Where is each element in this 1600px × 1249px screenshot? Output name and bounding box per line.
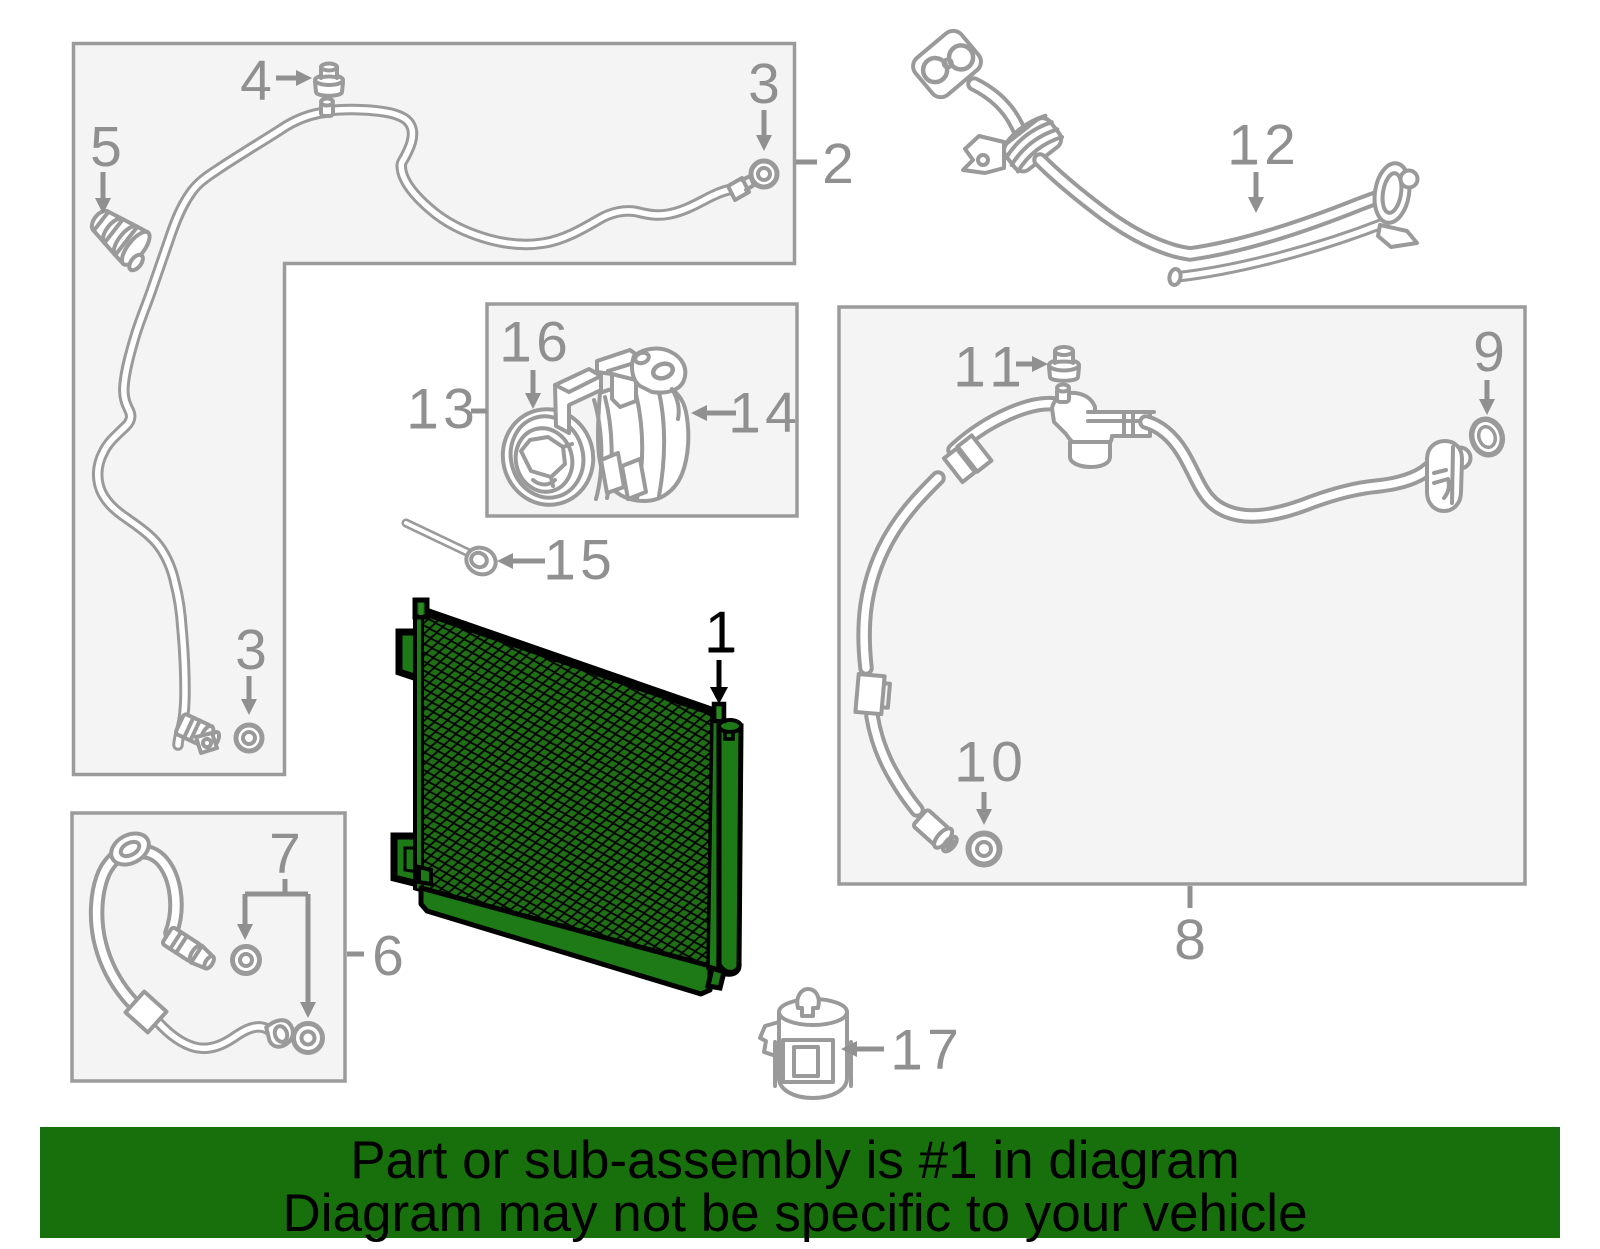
svg-text:6: 6 xyxy=(536,310,568,374)
svg-text:1: 1 xyxy=(407,377,439,441)
svg-text:1: 1 xyxy=(705,600,737,665)
svg-text:9: 9 xyxy=(1473,320,1505,384)
svg-text:6: 6 xyxy=(372,924,404,988)
svg-text:4: 4 xyxy=(240,49,272,113)
svg-text:1: 1 xyxy=(544,528,576,592)
svg-text:8: 8 xyxy=(1174,908,1206,972)
svg-text:1: 1 xyxy=(500,310,532,374)
svg-text:Diagram may not be specific to: Diagram may not be specific to your vehi… xyxy=(282,1184,1307,1243)
svg-text:1: 1 xyxy=(891,1018,923,1082)
svg-text:1: 1 xyxy=(954,335,986,399)
svg-text:3: 3 xyxy=(443,377,475,441)
svg-text:5: 5 xyxy=(90,115,122,179)
svg-text:1: 1 xyxy=(955,730,987,794)
svg-text:1: 1 xyxy=(1228,113,1260,177)
svg-text:2: 2 xyxy=(822,132,854,196)
svg-text:Part or sub-assembly is #1 in: Part or sub-assembly is #1 in diagram xyxy=(350,1131,1240,1190)
svg-text:2: 2 xyxy=(1264,113,1296,177)
svg-text:3: 3 xyxy=(748,52,780,116)
svg-text:3: 3 xyxy=(235,618,267,682)
svg-text:5: 5 xyxy=(580,528,612,592)
svg-text:4: 4 xyxy=(765,381,797,445)
svg-text:0: 0 xyxy=(991,730,1023,794)
svg-text:1: 1 xyxy=(990,335,1022,399)
svg-text:7: 7 xyxy=(269,822,301,886)
svg-text:7: 7 xyxy=(927,1018,959,1082)
